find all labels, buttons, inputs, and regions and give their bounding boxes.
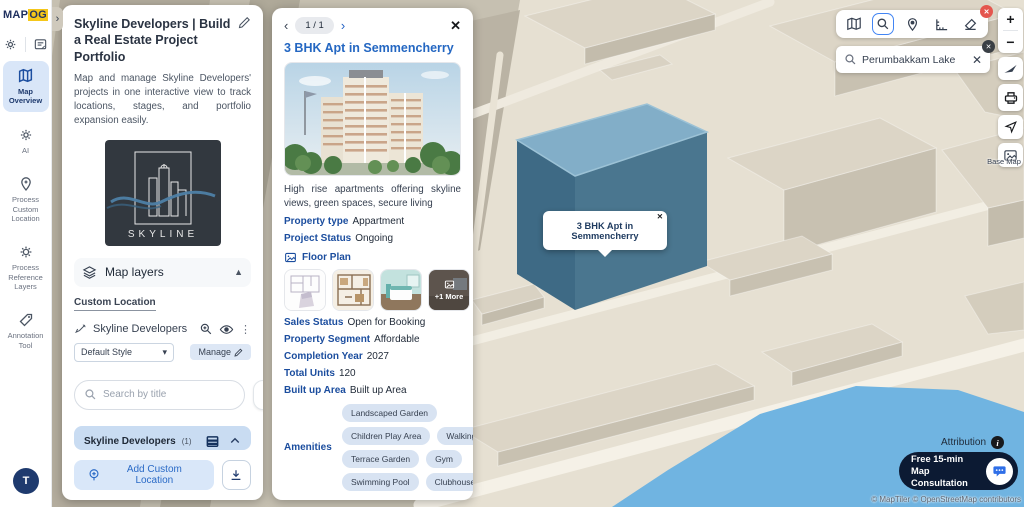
feedback-note-icon[interactable]	[33, 37, 48, 52]
floor-plan-thumb-1[interactable]	[284, 269, 326, 311]
prev-page-icon[interactable]: ‹	[284, 19, 288, 32]
building-tooltip: 3 BHK Apt in Semmencherry ✕	[543, 211, 667, 250]
sidebar-collapse-button[interactable]: ›	[52, 7, 63, 31]
amenities-label: Amenities	[284, 442, 336, 453]
tilt-pitch-icon	[1003, 61, 1018, 76]
manage-label: Manage	[198, 347, 231, 357]
map-legend-tool[interactable]	[843, 13, 865, 35]
amenities-list: Landscaped Garden Children Play AreaWalk…	[342, 404, 473, 491]
add-pin-icon	[87, 468, 101, 482]
tooltip-close-icon[interactable]: ✕	[657, 212, 663, 221]
sidebar-divider	[25, 37, 26, 52]
clear-search-icon[interactable]: ✕	[972, 53, 982, 67]
download-icon	[229, 468, 243, 482]
print-button[interactable]	[998, 84, 1023, 111]
locate-button[interactable]	[998, 115, 1023, 139]
field-value: Built up Area	[350, 385, 407, 396]
app-logo: MAPOG	[3, 9, 48, 21]
field-value: Appartment	[352, 216, 404, 227]
zoom-out-button[interactable]: −	[998, 31, 1023, 53]
chevron-down-icon: ▾	[162, 347, 167, 358]
more-images-icon	[444, 279, 455, 290]
zoom-in-button[interactable]: +	[998, 8, 1023, 30]
property-title: 3 BHK Apt in Semmencherry	[284, 41, 461, 55]
field-value: Open for Booking	[347, 317, 425, 328]
sidebar-item-label: Process Custom Location	[5, 195, 47, 223]
consultation-line2: Consultation	[911, 477, 980, 489]
app-sidebar: MAPOG Map Overview AI Process Custom Loc…	[0, 0, 52, 507]
amenity-pill[interactable]: Children Play Area	[342, 427, 430, 445]
sidebar-item-annotation-tool[interactable]: Annotation Tool	[3, 306, 49, 356]
layer-menu-icon[interactable]: ⋮	[240, 323, 251, 336]
add-pin-tool[interactable]	[901, 13, 923, 35]
table-view-icon[interactable]	[205, 434, 220, 449]
add-custom-location-button[interactable]: Add Custom Location	[74, 460, 214, 490]
pin-filter-button[interactable]	[253, 380, 263, 410]
sidebar-item-map-overview[interactable]: Map Overview	[3, 61, 49, 112]
search-by-title-input[interactable]	[103, 389, 235, 400]
floor-plan-thumb-2[interactable]	[332, 269, 374, 311]
sidebar-item-ai[interactable]: AI	[3, 121, 49, 161]
map-layers-label: Map layers	[105, 265, 164, 279]
edit-project-icon[interactable]	[238, 16, 251, 29]
image-icon	[284, 251, 297, 264]
amenity-pill[interactable]: Swimming Pool	[342, 473, 419, 491]
page-indicator: 1 / 1	[295, 17, 334, 34]
settings-icon[interactable]	[3, 37, 18, 52]
download-button[interactable]	[222, 460, 251, 490]
svg-text:SKYLINE: SKYLINE	[127, 229, 197, 240]
project-description: Map and manage Skyline Developers' proje…	[74, 72, 251, 129]
sidebar-item-label: AI	[22, 146, 29, 155]
sidebar-item-process-reference-layers[interactable]: Process Reference Layers	[3, 238, 49, 297]
collapse-up-icon: ▲	[234, 267, 243, 277]
search-close-badge[interactable]: ✕	[982, 40, 995, 53]
base-map-label: Base Map	[984, 157, 1024, 166]
field-value: Affordable	[374, 334, 419, 345]
layer-visibility-icon[interactable]	[219, 322, 234, 337]
field-label: Total Units	[284, 368, 335, 379]
next-page-icon[interactable]: ›	[341, 19, 345, 32]
group-count: (1)	[182, 437, 192, 446]
map-search-bar[interactable]: ✕ ✕	[836, 46, 990, 73]
field-label: Completion Year	[284, 351, 363, 362]
logo-text-og: OG	[28, 9, 48, 21]
search-icon	[84, 388, 97, 401]
field-label: Property Segment	[284, 334, 370, 345]
attribution-label: Attribution	[941, 437, 986, 448]
field-label: Project Status	[284, 233, 351, 244]
field-label: Sales Status	[284, 317, 343, 328]
layers-icon	[82, 265, 97, 280]
add-location-label: Add Custom Location	[108, 464, 201, 486]
zoom-control: + −	[998, 8, 1023, 53]
style-select-value: Default Style	[81, 347, 132, 357]
field-label: Property type	[284, 216, 348, 227]
pin-settings-icon	[261, 387, 264, 402]
user-avatar[interactable]: T	[13, 468, 39, 494]
map-attribution-credits: © MapTiler © OpenStreetMap contributors	[871, 495, 1021, 504]
tab-custom-location[interactable]: Custom Location	[74, 297, 156, 311]
floor-plan-gallery: +1 More	[284, 269, 461, 311]
floor-plan-label: Floor Plan	[302, 252, 351, 263]
sidebar-item-label: Map Overview	[5, 87, 47, 106]
amenity-pill[interactable]: Gym	[426, 450, 462, 468]
field-value: 120	[339, 368, 356, 379]
chat-icon	[986, 458, 1013, 485]
property-photo[interactable]	[284, 62, 461, 176]
navigation-arrow-icon	[1004, 120, 1018, 134]
more-photos-thumb[interactable]: +1 More	[428, 269, 470, 311]
property-detail-panel: ‹ 1 / 1 › ✕ 3 BHK Apt in Semmencherry	[272, 8, 473, 500]
sidebar-item-label: Annotation Tool	[5, 331, 47, 350]
search-icon	[844, 53, 857, 66]
toolbar-close-badge[interactable]: ✕	[980, 5, 993, 18]
close-detail-icon[interactable]: ✕	[450, 18, 461, 34]
amenity-pill[interactable]: Walking Track	[437, 427, 473, 445]
consultation-button[interactable]: Free 15-min Map Consultation	[899, 452, 1018, 490]
map-toolbar: ✕	[836, 10, 988, 38]
photo-thumb-3[interactable]	[380, 269, 422, 311]
property-description: High rise apartments offering skyline vi…	[284, 183, 461, 210]
field-value: 2027	[367, 351, 389, 362]
consultation-line1: Free 15-min Map	[911, 453, 980, 477]
layer-group: Skyline Developers (1) 3 BHK Apt in Semm…	[74, 426, 251, 450]
project-title: Skyline Developers | Build a Real Estate…	[74, 16, 232, 65]
eraser-tool[interactable]	[959, 13, 981, 35]
field-label: Built up Area	[284, 385, 346, 396]
map-layers-toggle[interactable]: Map layers ▲	[74, 258, 251, 287]
measure-tool[interactable]	[930, 13, 952, 35]
logo-text-map: MAP	[3, 9, 28, 21]
group-title: Skyline Developers	[84, 436, 176, 447]
zoom-to-layer-icon[interactable]	[199, 322, 213, 336]
amenity-pill[interactable]: Terrace Garden	[342, 450, 419, 468]
manage-button[interactable]: Manage	[190, 344, 251, 360]
app-window: MAPOG Map Overview AI Process Custom Loc…	[0, 0, 1024, 507]
amenity-pill[interactable]: Landscaped Garden	[342, 404, 437, 422]
title-search-field[interactable]	[74, 380, 245, 410]
style-select[interactable]: Default Style ▾	[74, 343, 174, 362]
project-panel: Skyline Developers | Build a Real Estate…	[62, 5, 263, 500]
sidebar-item-label: Process Reference Layers	[5, 263, 47, 291]
layer-name: Skyline Developers	[93, 323, 193, 335]
pencil-icon	[234, 348, 243, 357]
layer-group-header[interactable]: Skyline Developers (1)	[74, 426, 251, 450]
info-icon[interactable]: i	[991, 436, 1004, 449]
sidebar-item-process-custom-location[interactable]: Process Custom Location	[3, 170, 49, 229]
tooltip-pointer	[598, 250, 612, 257]
map-search-input[interactable]	[862, 54, 967, 66]
brush-icon	[74, 323, 87, 336]
building-tooltip-text: 3 BHK Apt in Semmencherry	[571, 221, 638, 241]
more-count-label: +1 More	[435, 292, 464, 301]
printer-icon	[1003, 90, 1019, 106]
field-value: Ongoing	[355, 233, 393, 244]
chevron-up-icon[interactable]	[229, 435, 241, 447]
search-tool[interactable]	[872, 13, 894, 35]
project-logo-image: SKYLINE	[105, 140, 221, 246]
amenity-pill[interactable]: Clubhouse	[426, 473, 473, 491]
tilt-button[interactable]	[998, 57, 1023, 80]
